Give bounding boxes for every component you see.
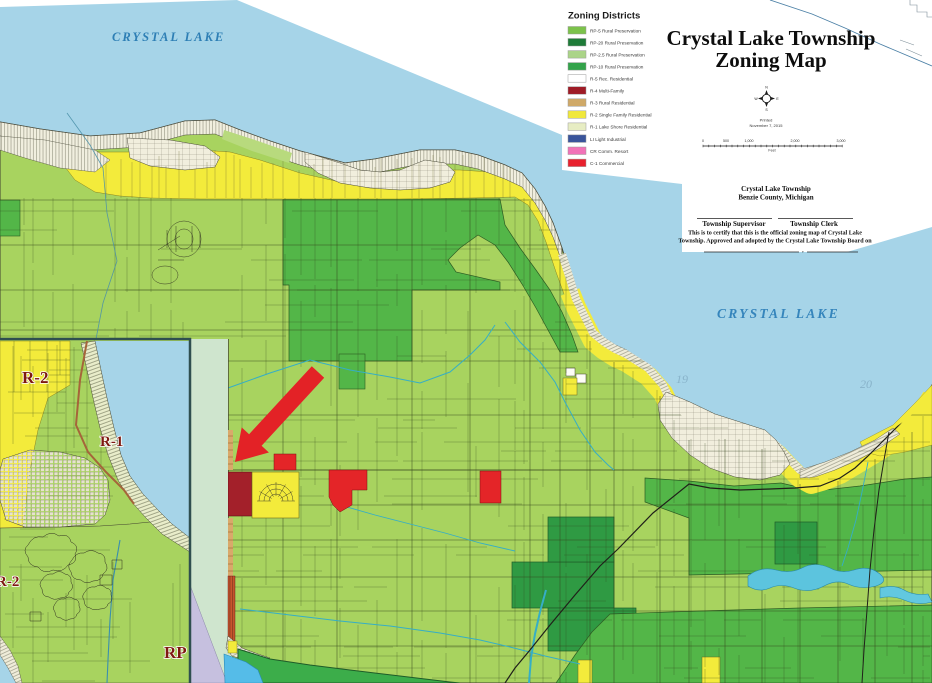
svg-text:Township Supervisor: Township Supervisor xyxy=(702,220,765,228)
svg-text:R-1 Lake Shore Residential: R-1 Lake Shore Residential xyxy=(590,125,647,130)
svg-text:,: , xyxy=(802,246,804,254)
svg-text:R-2: R-2 xyxy=(22,368,48,387)
svg-text:19: 19 xyxy=(676,372,688,386)
svg-text:R-2: R-2 xyxy=(0,574,19,590)
svg-text:Township Clerk: Township Clerk xyxy=(790,220,838,228)
svg-text:C-1 Commercial: C-1 Commercial xyxy=(590,161,624,166)
svg-text:RP-10 Rural Preservation: RP-10 Rural Preservation xyxy=(590,64,644,69)
svg-text:RP-2.5 Rural Preservation: RP-2.5 Rural Preservation xyxy=(590,52,645,57)
svg-text:RP-5 Rural Preservation: RP-5 Rural Preservation xyxy=(590,28,641,33)
svg-text:November 7, 2015: November 7, 2015 xyxy=(750,123,784,128)
svg-text:RP: RP xyxy=(164,643,187,662)
svg-text:R-4 Multi-Family: R-4 Multi-Family xyxy=(590,89,625,94)
svg-text:R-2 Single Family Residential: R-2 Single Family Residential xyxy=(590,113,651,118)
svg-text:20: 20 xyxy=(860,377,872,391)
svg-text:CRYSTAL LAKE: CRYSTAL LAKE xyxy=(112,30,225,44)
svg-text:Crystal Lake Township: Crystal Lake Township xyxy=(741,185,811,193)
svg-text:CRYSTAL LAKE: CRYSTAL LAKE xyxy=(717,306,840,321)
svg-text:This is to certify that this i: This is to certify that this is the offi… xyxy=(688,231,862,237)
svg-text:CR Comm. Resort: CR Comm. Resort xyxy=(590,149,629,154)
svg-text:Township. Approved and adopted: Township. Approved and adopted by the Cr… xyxy=(678,239,872,245)
svg-text:Zoning Districts: Zoning Districts xyxy=(568,11,640,22)
svg-text:1,000: 1,000 xyxy=(745,139,754,143)
svg-text:R-5 Rec. Residential: R-5 Rec. Residential xyxy=(590,77,633,82)
svg-text:Zoning Map: Zoning Map xyxy=(715,48,826,72)
svg-text:2,000: 2,000 xyxy=(791,139,800,143)
svg-text:Feet: Feet xyxy=(768,149,775,153)
svg-text:Crystal Lake Township: Crystal Lake Township xyxy=(667,26,876,50)
svg-text:0: 0 xyxy=(702,139,704,143)
svg-text:3,000: 3,000 xyxy=(837,139,846,143)
svg-text:500: 500 xyxy=(723,139,729,143)
svg-text:R-1: R-1 xyxy=(100,434,123,450)
svg-text:Benzie County, Michigan: Benzie County, Michigan xyxy=(738,194,813,202)
svg-text:Printed: Printed xyxy=(760,118,773,123)
svg-text:RP-20 Rural Preservation: RP-20 Rural Preservation xyxy=(590,40,644,45)
svg-text:R-3 Rural Residential: R-3 Rural Residential xyxy=(590,101,635,106)
svg-text:LI Light Industrial: LI Light Industrial xyxy=(590,137,626,142)
